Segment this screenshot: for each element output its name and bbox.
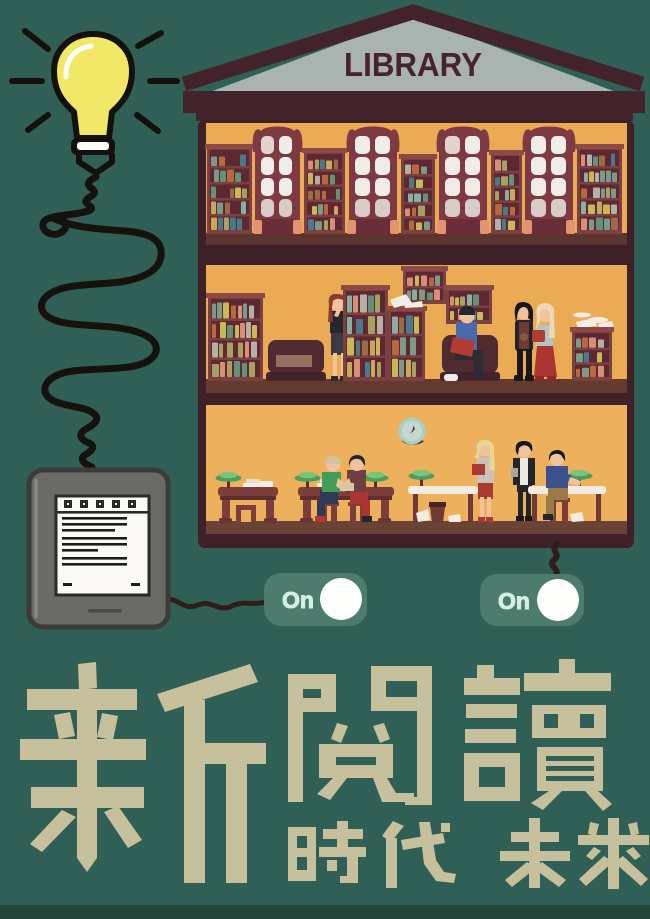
svg-text:On: On [282, 587, 314, 613]
svg-text:On: On [498, 588, 530, 614]
svg-text:LIBRARY: LIBRARY [344, 46, 482, 83]
